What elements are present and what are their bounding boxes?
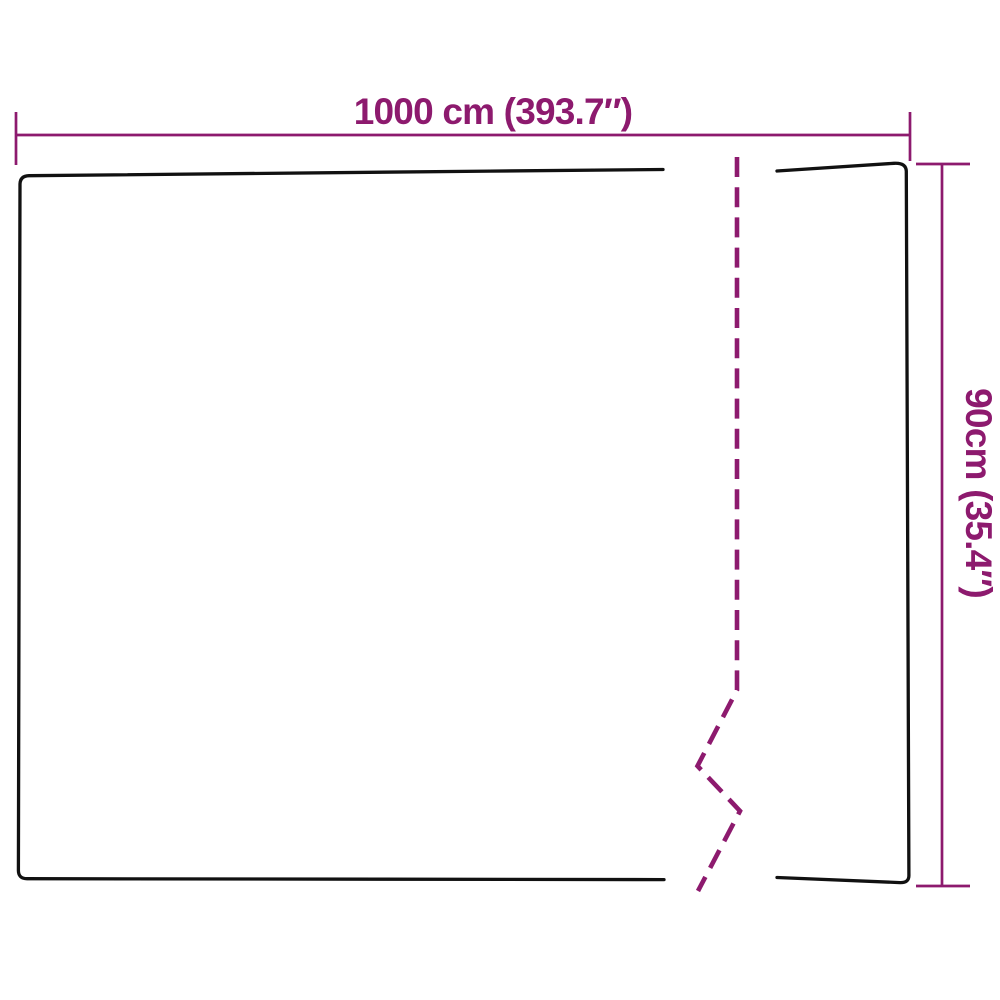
svg-text:1000 cm (393.7″): 1000 cm (393.7″) — [354, 91, 633, 132]
svg-text:90cm (35.4″): 90cm (35.4″) — [958, 388, 999, 598]
